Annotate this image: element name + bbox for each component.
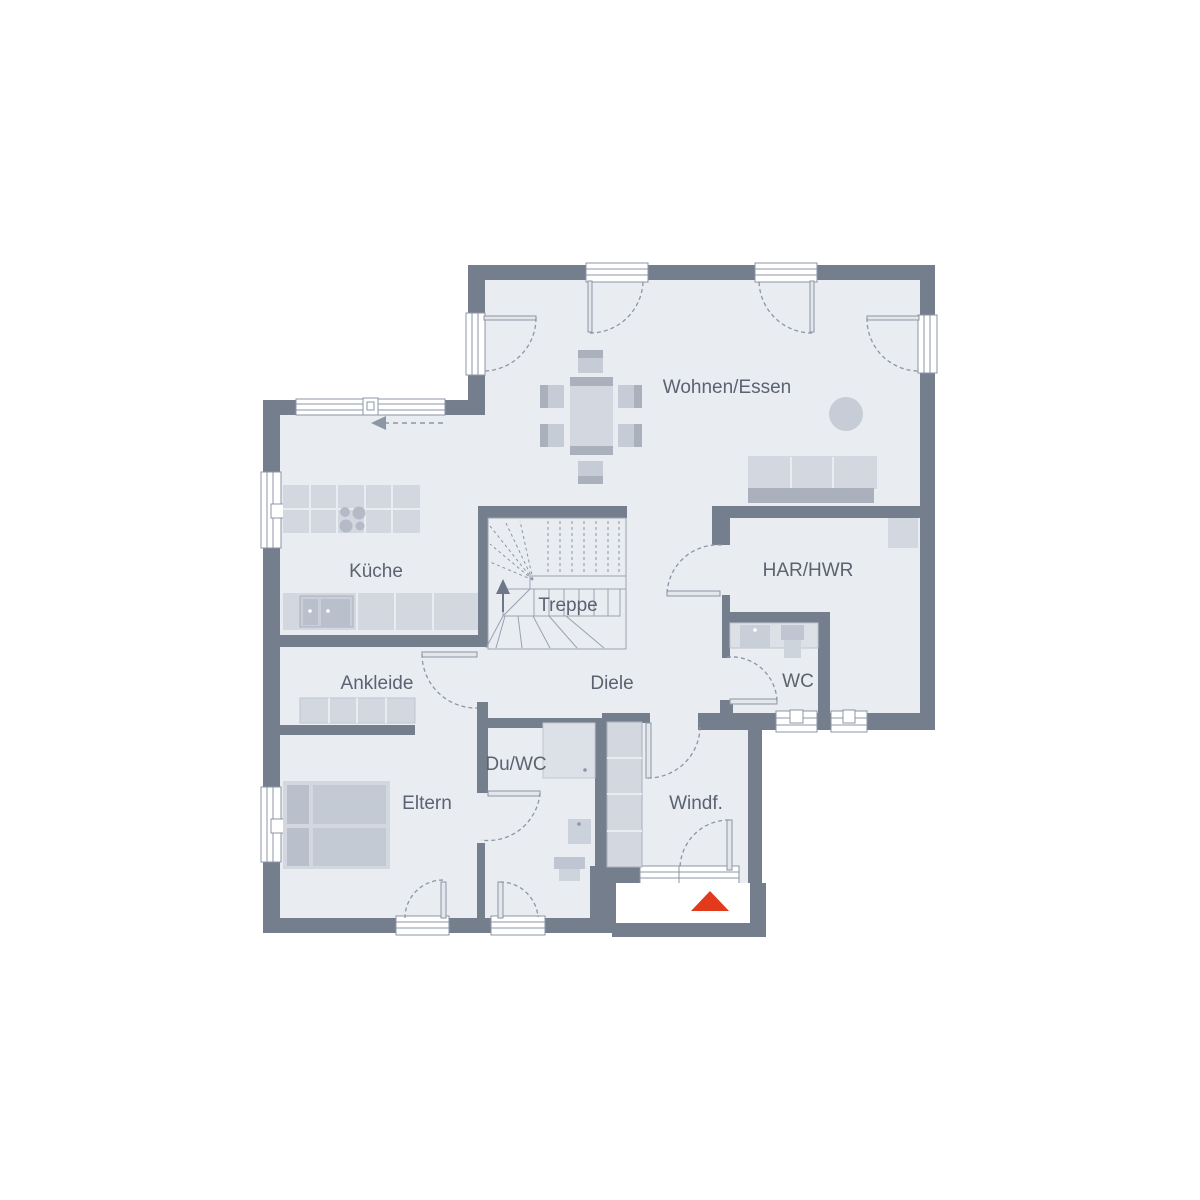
- room-label-eltern: Eltern: [402, 793, 452, 814]
- room-label-wohnen-essen: Wohnen/Essen: [663, 377, 792, 398]
- french-door-window-top-left: [586, 263, 648, 282]
- wall-segment: [722, 595, 730, 658]
- wall-segment: [612, 866, 642, 883]
- wardrobe-windfang: [607, 722, 642, 867]
- har-equipment: [888, 518, 918, 548]
- window-handle: [790, 710, 803, 723]
- blanket: [313, 785, 386, 824]
- window-handle: [843, 710, 855, 723]
- wall-segment: [698, 713, 720, 730]
- wall-segment: [818, 612, 830, 713]
- french-door-window-top-right: [755, 263, 817, 282]
- french-door-window-upperleft-wall: [466, 313, 485, 375]
- floor-plan-canvas: Wohnen/Essen Küche Treppe HAR/HWR WC Ank…: [0, 0, 1200, 1200]
- wardrobe-ankleide: [300, 698, 415, 723]
- room-label-wc: WC: [782, 671, 814, 692]
- entrance-porch: [616, 883, 750, 923]
- window-handle: [271, 819, 284, 833]
- entrance-door-and-sidelight: [640, 866, 739, 885]
- wall-segment: [712, 713, 935, 730]
- french-door-eltern-bottom: [396, 916, 449, 935]
- window-eltern-left: [261, 787, 284, 862]
- window-har-bottom: [831, 710, 867, 732]
- room-label-du-wc: Du/WC: [485, 754, 546, 775]
- french-door-window-right-wall: [918, 315, 937, 373]
- shower-icon: [543, 723, 595, 778]
- window-handle: [271, 504, 284, 518]
- sofa: [748, 456, 877, 503]
- blanket: [313, 828, 386, 866]
- wall-segment: [612, 923, 766, 937]
- room-label-kueche: Küche: [349, 561, 403, 582]
- pillow: [287, 785, 309, 824]
- wall-segment: [280, 725, 415, 735]
- wall-segment: [478, 506, 627, 518]
- sink-icon: [300, 596, 353, 627]
- window-kitchen-left: [261, 472, 284, 548]
- wall-segment: [730, 612, 828, 623]
- wall-segment: [712, 506, 730, 545]
- floor-plan: Wohnen/Essen Küche Treppe HAR/HWR WC Ank…: [0, 0, 1200, 1200]
- wall-segment: [470, 265, 935, 280]
- wall-segment: [595, 718, 607, 883]
- sliding-window-kitchen: [296, 398, 445, 415]
- toilet-icon: [554, 857, 585, 869]
- window-handle: [363, 398, 378, 415]
- dining-table: [570, 377, 613, 455]
- kitchen-counter-top: [283, 485, 420, 533]
- toilet-icon: [781, 625, 804, 640]
- wall-segment: [712, 506, 920, 518]
- room-label-treppe: Treppe: [538, 595, 598, 616]
- window-wc-bottom: [776, 710, 817, 732]
- french-door-duwc-bottom: [491, 916, 545, 935]
- room-label-har-hwr: HAR/HWR: [763, 560, 854, 581]
- wall-segment: [477, 843, 485, 918]
- pillow: [287, 828, 309, 866]
- wall-segment: [748, 723, 762, 883]
- double-bed: [283, 781, 390, 869]
- room-label-windfang: Windf.: [669, 793, 723, 814]
- kitchen-counter-bottom: [283, 593, 478, 630]
- room-label-diele: Diele: [590, 673, 633, 694]
- wall-segment: [478, 518, 488, 647]
- wall-segment: [477, 702, 488, 793]
- wall-segment: [280, 635, 488, 647]
- room-label-ankleide: Ankleide: [341, 673, 414, 694]
- side-table: [829, 397, 863, 431]
- porch-floor: [616, 883, 750, 923]
